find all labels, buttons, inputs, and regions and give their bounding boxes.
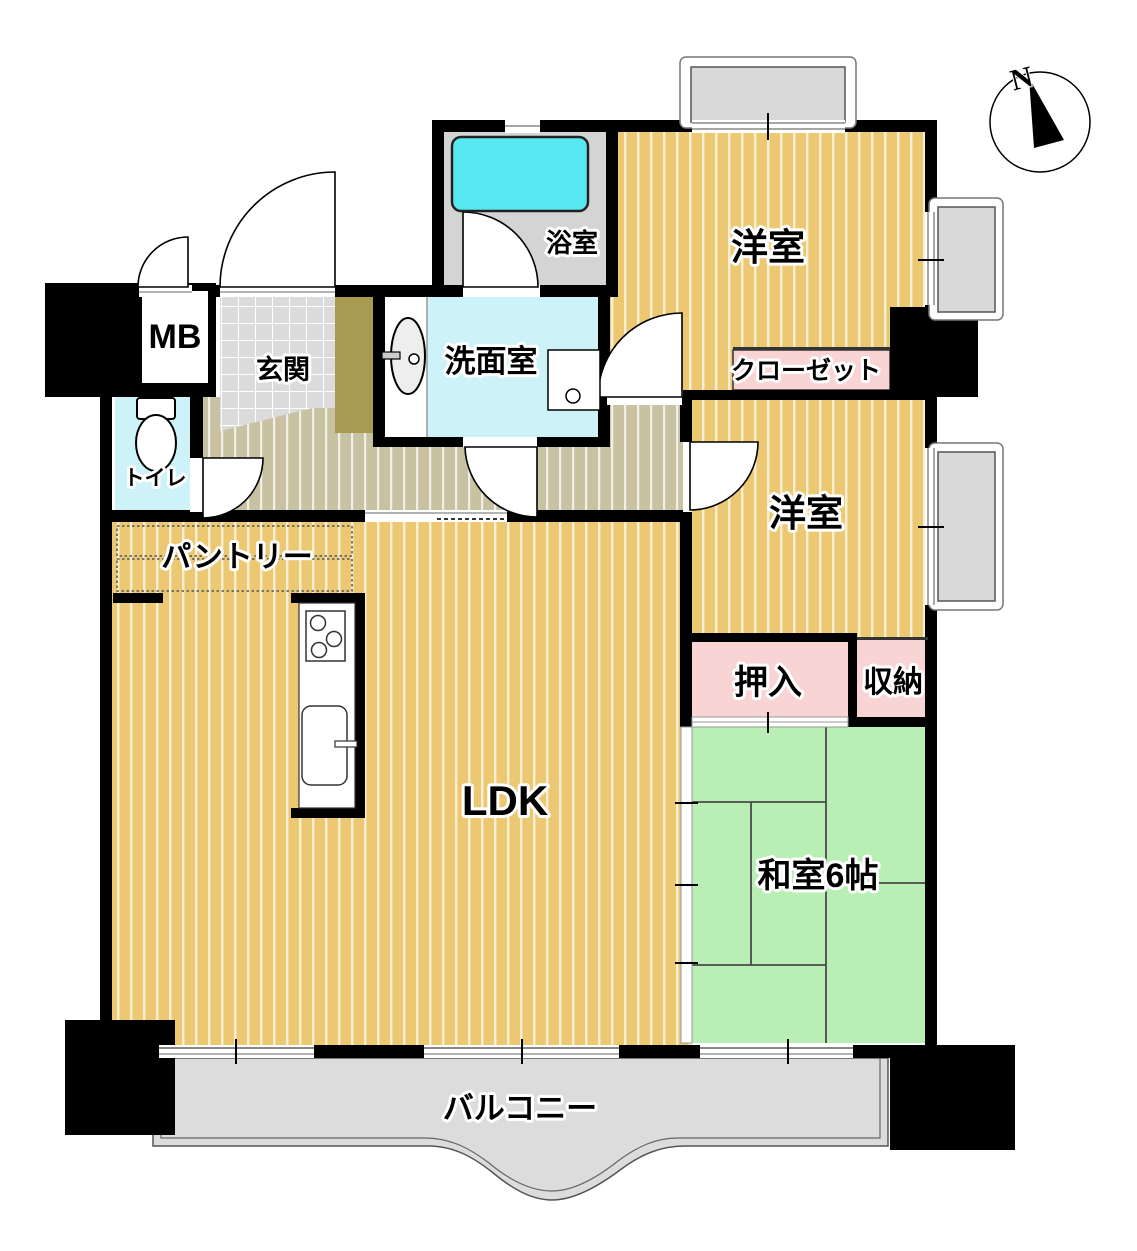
washer-faucet (382, 352, 400, 359)
label-western-room-2: 洋室 (769, 492, 843, 534)
label-closet: クローゼット (731, 357, 881, 385)
entrance-step (335, 297, 375, 433)
kitchen-faucet (335, 741, 357, 747)
bathtub (452, 137, 588, 211)
label-toilet: トイレ (124, 467, 187, 490)
label-oshiire: 押入 (734, 664, 802, 702)
label-meter-box: MB (149, 318, 202, 356)
toilet-bowl (136, 415, 176, 471)
door-entrance (220, 172, 335, 287)
ldk-floor (100, 515, 692, 1050)
label-pantry: パントリー (161, 541, 313, 574)
label-balcony: バルコニー (443, 1091, 597, 1126)
label-washroom: 洗面室 (445, 344, 538, 379)
compass-icon: N (990, 60, 1090, 172)
floor-plan-page: N MB 玄関 トイレ パントリー 洗面室 浴室 洋室 クローゼット 洋室 押入… (0, 0, 1137, 1251)
label-japanese-room: 和室6帖 (758, 856, 879, 895)
label-entrance: 玄関 (256, 354, 310, 385)
floor-plan-drawing: N MB 玄関 トイレ パントリー 洗面室 浴室 洋室 クローゼット 洋室 押入… (0, 0, 1137, 1251)
label-ldk: LDK (462, 777, 548, 824)
label-western-room-1: 洋室 (731, 226, 805, 268)
label-bathroom: 浴室 (546, 228, 598, 258)
balcony-floor (153, 1058, 888, 1200)
door-mb (138, 237, 188, 287)
label-storage: 収納 (863, 666, 923, 699)
